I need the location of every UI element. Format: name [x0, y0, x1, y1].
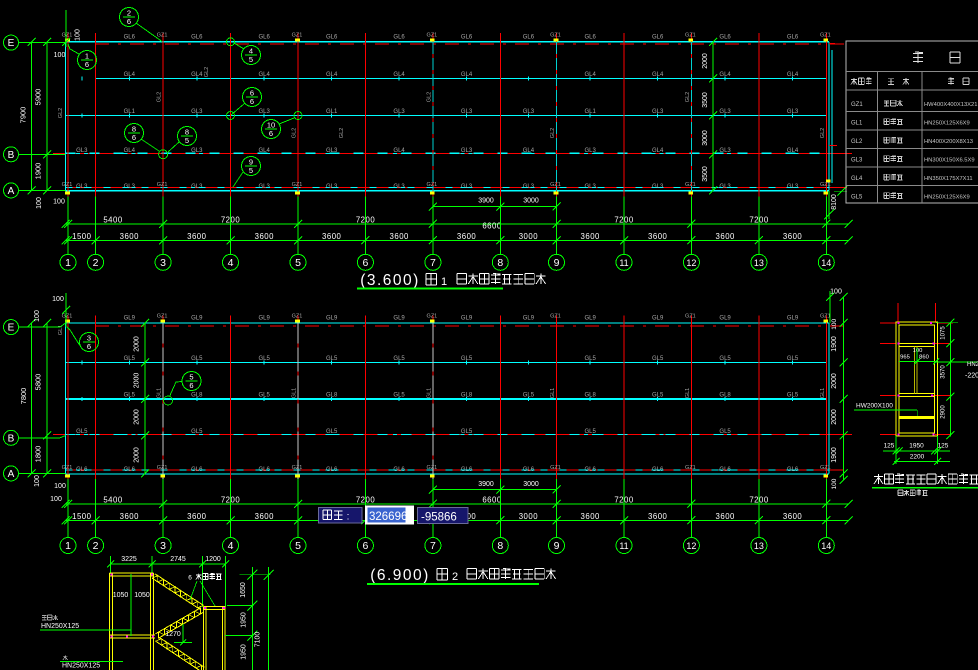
svg-text:GL1: GL1: [851, 121, 863, 127]
svg-text:GL6: GL6: [719, 34, 731, 40]
svg-text:3600: 3600: [120, 512, 140, 521]
svg-text:1900: 1900: [831, 447, 838, 463]
svg-text:E: E: [8, 323, 15, 334]
svg-text:GZ1: GZ1: [685, 32, 696, 38]
svg-text:2900: 2900: [940, 405, 946, 419]
svg-text:3570: 3570: [940, 365, 946, 379]
svg-text:A: A: [8, 186, 15, 197]
svg-text:1: 1: [65, 257, 71, 269]
svg-text:3225: 3225: [121, 556, 137, 563]
svg-text:1950: 1950: [241, 644, 248, 660]
svg-text:1500: 1500: [72, 232, 92, 241]
svg-text:14: 14: [821, 541, 831, 551]
svg-text:GL2: GL2: [851, 139, 863, 145]
svg-text:GL6: GL6: [585, 34, 597, 40]
svg-text:860: 860: [919, 355, 929, 361]
svg-text:GL9: GL9: [393, 316, 405, 322]
svg-text:6: 6: [269, 129, 273, 138]
svg-text:GL9: GL9: [259, 316, 271, 322]
svg-text:GL2: GL2: [204, 67, 210, 77]
svg-text:7: 7: [430, 540, 436, 552]
svg-text:3600: 3600: [120, 232, 140, 241]
svg-text:2: 2: [93, 540, 99, 552]
svg-text:3900: 3900: [478, 481, 494, 488]
svg-text:GZ1: GZ1: [820, 465, 831, 471]
svg-text:HN350X175X7X11: HN350X175X7X11: [924, 176, 973, 182]
svg-text:11: 11: [619, 258, 628, 268]
svg-text:6: 6: [127, 17, 131, 26]
svg-text:3600: 3600: [783, 232, 803, 241]
svg-text:GL2: GL2: [292, 128, 298, 138]
svg-text:6: 6: [87, 342, 91, 351]
svg-text:2000: 2000: [831, 409, 838, 425]
svg-text:GZ1: GZ1: [820, 182, 831, 188]
svg-text:1950: 1950: [909, 443, 924, 450]
svg-text:1: 1: [441, 276, 447, 288]
svg-text:3600: 3600: [457, 232, 477, 241]
svg-text:5800: 5800: [34, 374, 43, 391]
svg-text:3600: 3600: [716, 512, 736, 521]
svg-text:GL9: GL9: [787, 316, 799, 322]
svg-text:3600: 3600: [255, 232, 275, 241]
svg-text:GL1: GL1: [292, 388, 298, 398]
svg-text:GL2: GL2: [58, 108, 64, 118]
svg-text:GL9: GL9: [124, 316, 136, 322]
svg-text:GL6: GL6: [787, 34, 799, 40]
svg-text:GZ1: GZ1: [62, 465, 73, 471]
svg-text:326696: 326696: [369, 511, 407, 523]
svg-text:3600: 3600: [187, 512, 207, 521]
svg-text:GL9: GL9: [523, 316, 535, 322]
svg-text:12: 12: [686, 541, 696, 551]
svg-text:GZ1: GZ1: [427, 465, 438, 471]
svg-text:GL1: GL1: [550, 388, 556, 398]
svg-text:6: 6: [189, 381, 193, 390]
svg-text:3600: 3600: [390, 232, 410, 241]
svg-text:GZ1: GZ1: [820, 32, 831, 38]
svg-text:GZ1: GZ1: [62, 32, 73, 38]
svg-text:GL6: GL6: [652, 34, 664, 40]
svg-text:GL9: GL9: [461, 316, 473, 322]
svg-text:GZ1: GZ1: [427, 32, 438, 38]
svg-text:9: 9: [554, 540, 560, 552]
svg-text:3000: 3000: [519, 232, 539, 241]
svg-text:1270: 1270: [165, 631, 181, 638]
svg-text:2000: 2000: [134, 447, 141, 463]
svg-text:100: 100: [830, 289, 842, 296]
svg-text:3900: 3900: [478, 198, 494, 205]
svg-text:3000: 3000: [702, 130, 709, 146]
svg-text:3600: 3600: [648, 512, 668, 521]
svg-text:HN300X150X6.5X9: HN300X150X6.5X9: [924, 158, 975, 164]
svg-text:6: 6: [85, 60, 89, 69]
svg-text:GL6: GL6: [326, 34, 338, 40]
svg-text:(6.900): (6.900): [370, 567, 430, 584]
svg-text:3500: 3500: [702, 92, 709, 108]
svg-text:965: 965: [900, 355, 910, 361]
svg-text:2745: 2745: [170, 556, 186, 563]
svg-text:1050: 1050: [134, 592, 150, 599]
svg-text:1800: 1800: [34, 446, 43, 463]
svg-text:GL2: GL2: [685, 92, 691, 102]
svg-text:GL1: GL1: [427, 388, 433, 398]
svg-text:5400: 5400: [103, 496, 123, 505]
svg-text:GL6: GL6: [124, 34, 136, 40]
svg-text:GZ1: GZ1: [292, 314, 303, 320]
svg-text:6: 6: [132, 133, 136, 142]
svg-text:1500: 1500: [72, 512, 92, 521]
svg-text:GL6: GL6: [191, 34, 203, 40]
svg-text:3600: 3600: [322, 232, 342, 241]
svg-text:GZ1: GZ1: [550, 465, 561, 471]
svg-text:GL6: GL6: [523, 34, 535, 40]
svg-text:8: 8: [497, 257, 503, 269]
svg-text:2000: 2000: [134, 336, 141, 352]
svg-text:3600: 3600: [716, 232, 736, 241]
svg-text:GZ1: GZ1: [157, 182, 168, 188]
svg-text:7900: 7900: [19, 107, 28, 124]
svg-text:5: 5: [295, 257, 301, 269]
svg-text:5: 5: [249, 166, 253, 175]
svg-text:6: 6: [188, 575, 192, 582]
svg-text:3600: 3600: [581, 512, 601, 521]
svg-text:6: 6: [362, 540, 368, 552]
svg-text:3600: 3600: [255, 512, 275, 521]
svg-text:2: 2: [93, 257, 99, 269]
svg-text:GL9: GL9: [326, 316, 338, 322]
svg-text:3600: 3600: [648, 232, 668, 241]
svg-text:100: 100: [74, 29, 81, 41]
svg-text:8100: 8100: [831, 194, 838, 210]
svg-text:HN250X125X6X9: HN250X125X6X9: [924, 121, 970, 127]
svg-text:GL6: GL6: [259, 34, 271, 40]
svg-text:100: 100: [53, 199, 65, 206]
svg-text:1650: 1650: [240, 582, 247, 598]
svg-text:11: 11: [619, 541, 628, 551]
svg-text:GZ1: GZ1: [550, 182, 561, 188]
svg-text:7: 7: [430, 257, 436, 269]
svg-text:6600: 6600: [482, 496, 502, 505]
svg-text:GZ1: GZ1: [62, 182, 73, 188]
svg-text:GL6: GL6: [461, 34, 473, 40]
svg-text:7100: 7100: [255, 632, 262, 648]
svg-text:GL9: GL9: [585, 316, 597, 322]
svg-text:GL3: GL3: [851, 158, 863, 164]
svg-text:5: 5: [249, 55, 253, 64]
svg-text:8: 8: [497, 540, 503, 552]
svg-text:GZ1: GZ1: [157, 465, 168, 471]
svg-text:GZ1: GZ1: [157, 314, 168, 320]
svg-text:100: 100: [52, 296, 64, 303]
svg-text:GL2: GL2: [550, 128, 556, 138]
svg-text:2: 2: [452, 571, 458, 583]
svg-text:GZ1: GZ1: [62, 314, 73, 320]
svg-text:GL1: GL1: [820, 388, 826, 398]
svg-text:1: 1: [65, 540, 71, 552]
svg-text:B: B: [8, 433, 15, 444]
svg-text:GL2: GL2: [157, 92, 163, 102]
svg-text:1200: 1200: [205, 556, 221, 563]
svg-text:3600: 3600: [187, 232, 207, 241]
svg-text:1050: 1050: [113, 592, 129, 599]
svg-text:-220: -220: [965, 373, 978, 380]
svg-text:GZ1: GZ1: [427, 314, 438, 320]
svg-text:100: 100: [34, 310, 41, 322]
svg-text:GZ1: GZ1: [685, 465, 696, 471]
svg-text:GZ1: GZ1: [685, 314, 696, 320]
svg-text:2000: 2000: [702, 53, 709, 69]
svg-text:100: 100: [54, 483, 66, 490]
svg-text:9: 9: [554, 257, 560, 269]
svg-text:3000: 3000: [519, 512, 539, 521]
svg-text:2000: 2000: [134, 373, 141, 389]
svg-text:125: 125: [884, 443, 895, 450]
svg-text:HW400X400X13X21: HW400X400X13X21: [924, 102, 978, 108]
svg-text:3000: 3000: [523, 481, 539, 488]
svg-text:6: 6: [362, 257, 368, 269]
svg-text:100: 100: [913, 348, 923, 354]
svg-text:100: 100: [36, 197, 43, 209]
svg-text:GL1: GL1: [685, 388, 691, 398]
svg-text:B: B: [8, 150, 15, 161]
svg-text:100: 100: [831, 318, 838, 329]
svg-text:4: 4: [228, 257, 234, 269]
svg-text:100: 100: [34, 475, 41, 487]
svg-text:100: 100: [831, 478, 838, 489]
svg-text:GL9: GL9: [652, 316, 664, 322]
svg-text:GL2: GL2: [427, 92, 433, 102]
svg-text:5: 5: [185, 136, 189, 145]
svg-text:GZ1: GZ1: [427, 182, 438, 188]
svg-text:1075: 1075: [940, 326, 946, 340]
svg-text:HW200X100: HW200X100: [856, 403, 893, 410]
svg-text:GL1: GL1: [157, 388, 163, 398]
svg-text:GZ1: GZ1: [292, 465, 303, 471]
svg-text:13: 13: [754, 541, 764, 551]
svg-text:3: 3: [160, 257, 166, 269]
svg-text:5: 5: [295, 540, 301, 552]
svg-text:2200: 2200: [910, 454, 925, 461]
svg-text:HN2: HN2: [967, 362, 978, 368]
svg-text:GL2: GL2: [820, 128, 826, 138]
svg-text:-95866: -95866: [421, 512, 457, 524]
svg-text:13: 13: [754, 258, 764, 268]
svg-text:GZ1: GZ1: [851, 102, 863, 108]
svg-text:4: 4: [228, 540, 234, 552]
svg-text:3000: 3000: [523, 198, 539, 205]
svg-text:100: 100: [50, 496, 62, 503]
svg-text:HN250X125: HN250X125: [41, 623, 79, 630]
svg-text:14: 14: [821, 258, 831, 268]
svg-text:GZ1: GZ1: [292, 32, 303, 38]
svg-text:7800: 7800: [19, 388, 28, 405]
svg-text:5900: 5900: [34, 89, 43, 106]
svg-text:GZ1: GZ1: [157, 32, 168, 38]
svg-text:1900: 1900: [34, 163, 43, 180]
svg-text:GZ1: GZ1: [820, 314, 831, 320]
svg-text:12: 12: [686, 258, 696, 268]
svg-text:GZ1: GZ1: [550, 32, 561, 38]
svg-text:GZ1: GZ1: [685, 182, 696, 188]
svg-text:2000: 2000: [134, 409, 141, 425]
svg-text:HN250X125: HN250X125: [62, 663, 100, 670]
svg-text:GZ1: GZ1: [292, 182, 303, 188]
svg-text:6600: 6600: [482, 222, 502, 231]
svg-text:GZ1: GZ1: [550, 314, 561, 320]
svg-text:A: A: [8, 469, 15, 480]
svg-text:5400: 5400: [103, 216, 123, 225]
svg-text:3: 3: [160, 540, 166, 552]
svg-text:3500: 3500: [702, 166, 709, 182]
svg-text:3600: 3600: [581, 232, 601, 241]
svg-text:1900: 1900: [831, 336, 838, 352]
svg-text:125: 125: [938, 443, 949, 450]
svg-text:3600: 3600: [783, 512, 803, 521]
svg-text:E: E: [8, 38, 15, 49]
svg-text:6: 6: [250, 97, 254, 106]
svg-text:GL9: GL9: [719, 316, 731, 322]
svg-text:(3.600): (3.600): [360, 272, 420, 289]
svg-text:100: 100: [54, 52, 66, 59]
svg-text:GL4: GL4: [851, 176, 863, 182]
svg-text:GL6: GL6: [393, 34, 405, 40]
svg-text:HN250X125X6X9: HN250X125X6X9: [924, 195, 970, 201]
svg-text:GL9: GL9: [191, 316, 203, 322]
svg-text:2000: 2000: [831, 373, 838, 389]
svg-text:GL5: GL5: [851, 195, 863, 201]
svg-text:HN400X200X8X13: HN400X200X8X13: [924, 139, 973, 145]
svg-text:GL2: GL2: [339, 128, 345, 138]
svg-text::: :: [347, 512, 350, 523]
svg-text:1950: 1950: [241, 612, 248, 628]
